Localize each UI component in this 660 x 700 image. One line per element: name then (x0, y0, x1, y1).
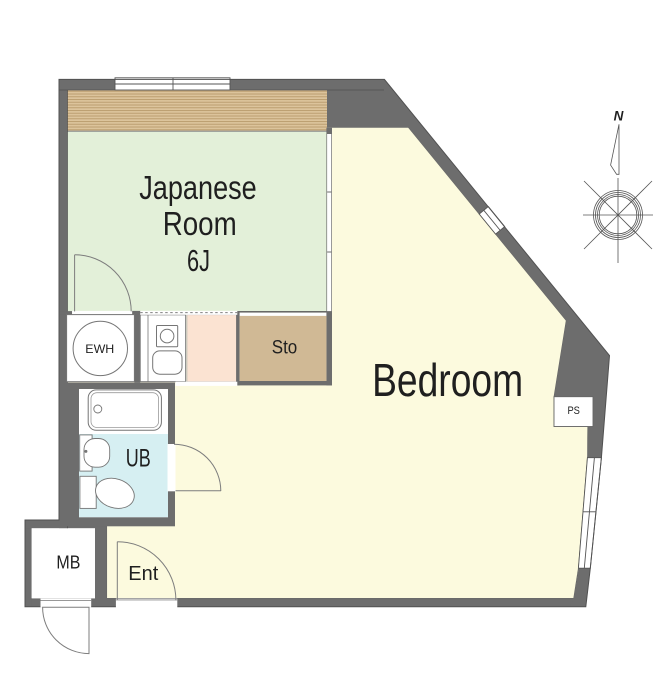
svg-text:Ent: Ent (128, 562, 158, 585)
svg-text:6J: 6J (187, 243, 210, 278)
svg-text:N: N (614, 109, 624, 124)
svg-text:EWH: EWH (85, 343, 114, 356)
svg-text:UB: UB (126, 445, 151, 473)
svg-text:PS: PS (567, 405, 580, 417)
svg-text:Japanese: Japanese (139, 169, 257, 206)
svg-text:Bedroom: Bedroom (372, 354, 523, 406)
svg-text:MB: MB (56, 552, 80, 572)
svg-text:Room: Room (163, 205, 237, 242)
svg-text:Sto: Sto (272, 337, 298, 359)
